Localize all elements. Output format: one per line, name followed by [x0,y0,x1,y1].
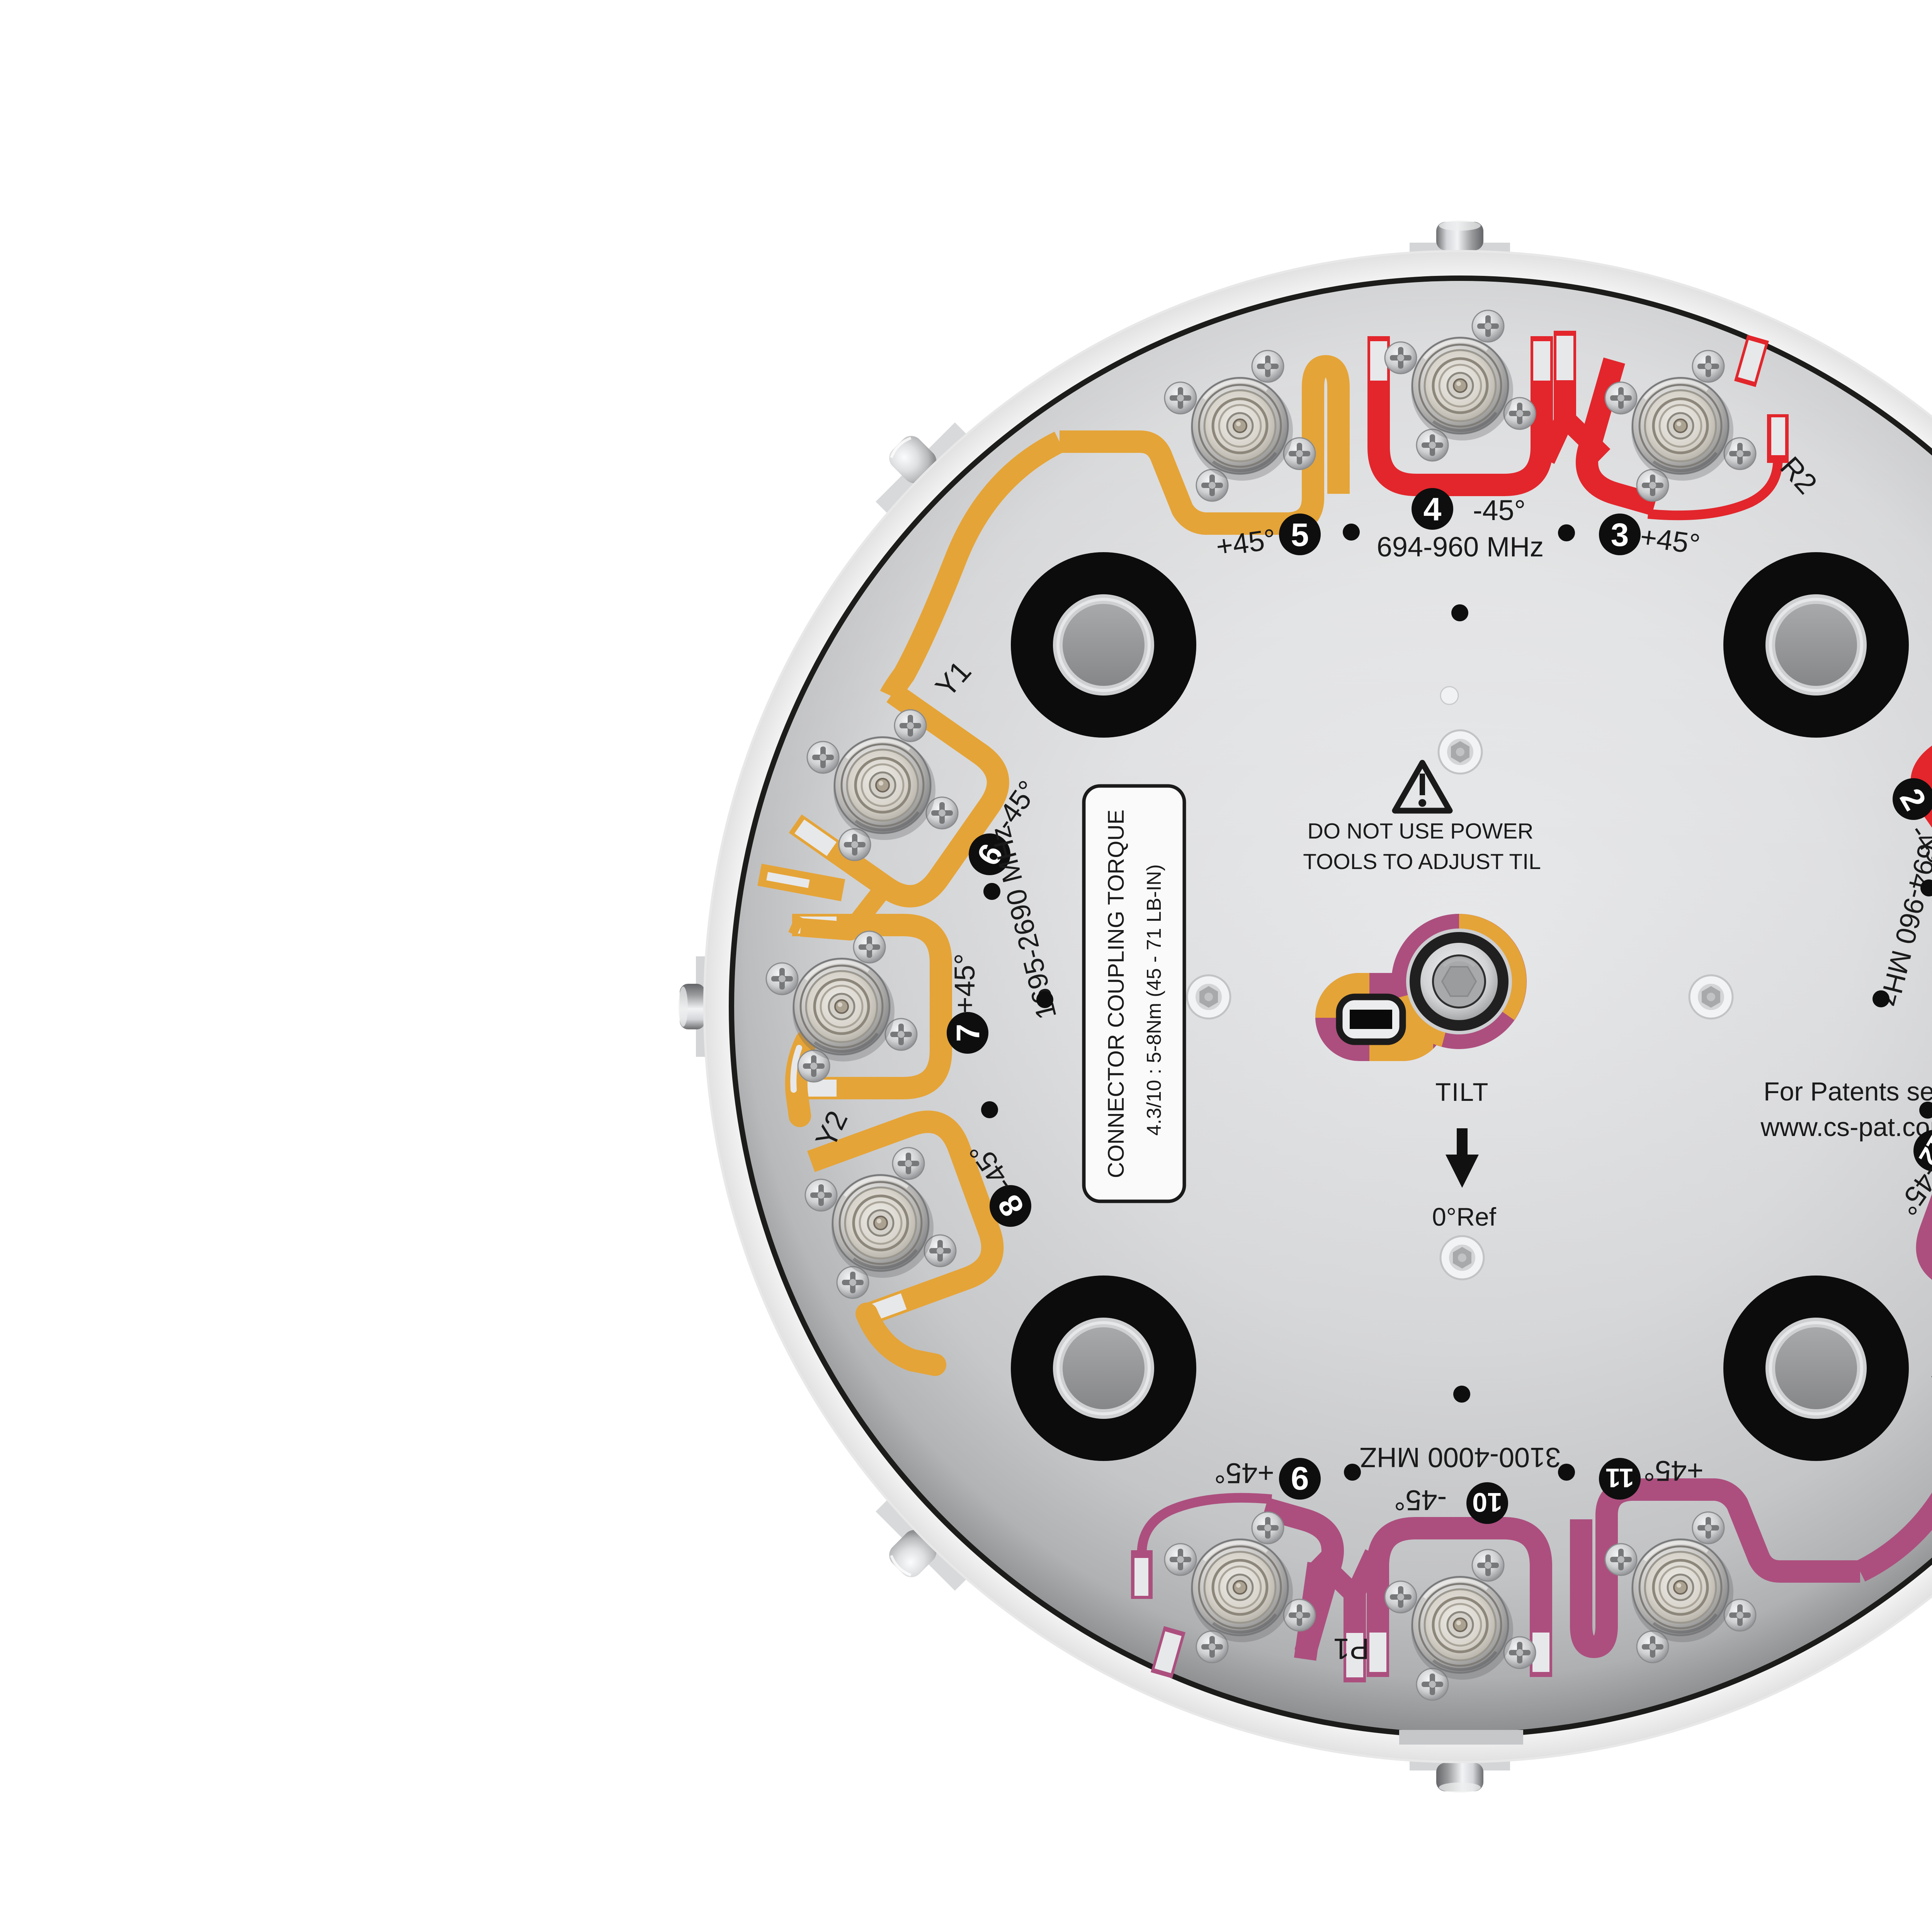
svg-text:9: 9 [1291,1460,1309,1497]
svg-text:0°Ref: 0°Ref [1432,1202,1496,1231]
svg-text:694-960 MHz: 694-960 MHz [1377,532,1544,563]
svg-text:7: 7 [950,1024,986,1042]
svg-text:11: 11 [1605,1463,1634,1493]
svg-text:+45°: +45° [949,953,981,1013]
svg-text:For Patents see: For Patents see [1764,1077,1932,1106]
svg-text:-45°: -45° [1394,1484,1447,1516]
svg-text:-45°: -45° [1473,494,1526,526]
svg-text:+45°: +45° [1643,1455,1703,1487]
svg-text:5: 5 [1291,517,1309,553]
svg-text:TILT: TILT [1435,1078,1489,1106]
svg-text:10: 10 [1472,1487,1502,1517]
svg-text:TOOLS TO ADJUST TIL: TOOLS TO ADJUST TIL [1303,849,1541,874]
svg-text:4: 4 [1423,491,1442,527]
svg-text:P1: P1 [1333,1632,1369,1665]
svg-text:+45°: +45° [1214,1457,1274,1489]
svg-text:CONNECTOR COUPLING TORQUE: CONNECTOR COUPLING TORQUE [1104,810,1129,1178]
svg-text:3: 3 [1611,517,1629,553]
svg-text:3100-4000 MHZ: 3100-4000 MHZ [1360,1442,1561,1473]
svg-text:4.3/10 : 5-8Nm (45 - 71 LB-IN): 4.3/10 : 5-8Nm (45 - 71 LB-IN) [1143,864,1165,1136]
svg-text:www.cs-pat.com: www.cs-pat.com [1760,1112,1932,1142]
svg-text:DO NOT USE POWER: DO NOT USE POWER [1308,819,1534,844]
